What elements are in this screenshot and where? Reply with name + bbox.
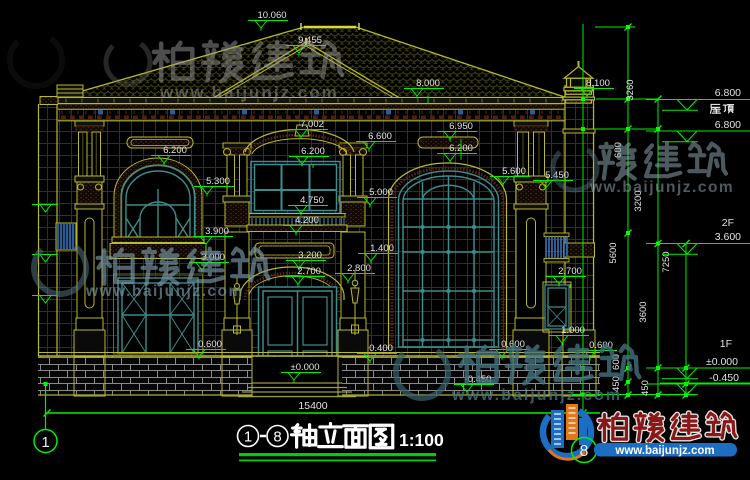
svg-text:10.060: 10.060 xyxy=(257,10,286,21)
svg-text:3.200: 3.200 xyxy=(298,250,322,261)
svg-text:2.800: 2.800 xyxy=(347,263,371,274)
svg-text:8.100: 8.100 xyxy=(586,78,610,89)
svg-text:5.300: 5.300 xyxy=(206,176,230,187)
svg-text:3600: 3600 xyxy=(638,301,649,322)
svg-text:ww.baijunjz.com: ww.baijunjz.com xyxy=(589,179,734,196)
svg-text:6.200: 6.200 xyxy=(163,145,187,156)
svg-text:1.400: 1.400 xyxy=(370,243,394,254)
svg-text:1F: 1F xyxy=(720,338,732,350)
svg-text:6.600: 6.600 xyxy=(368,131,392,142)
svg-text:7.002: 7.002 xyxy=(300,119,324,130)
svg-text:www.baijunjz.com: www.baijunjz.com xyxy=(614,445,714,457)
svg-text:5.600: 5.600 xyxy=(502,166,526,177)
svg-text:15400: 15400 xyxy=(298,400,327,412)
svg-text:www.baijunjz.com: www.baijunjz.com xyxy=(159,83,339,102)
svg-text:6.200: 6.200 xyxy=(301,146,325,157)
svg-text:www.baijunjz.com: www.baijunjz.com xyxy=(85,283,244,300)
svg-text:2F: 2F xyxy=(722,217,734,229)
svg-text:6.800: 6.800 xyxy=(715,119,741,131)
svg-text:3.900: 3.900 xyxy=(205,226,229,237)
svg-text:6.950: 6.950 xyxy=(449,121,473,132)
svg-text:2.700: 2.700 xyxy=(558,266,582,277)
svg-text:4.200: 4.200 xyxy=(295,215,319,226)
svg-text:3260: 3260 xyxy=(625,79,636,100)
svg-text:0.600: 0.600 xyxy=(198,339,222,350)
svg-text:www.baijunjz.com: www.baijunjz.com xyxy=(451,387,622,404)
svg-text:2.700: 2.700 xyxy=(297,266,321,277)
svg-text:1: 1 xyxy=(244,429,252,446)
svg-text:4.750: 4.750 xyxy=(300,195,324,206)
svg-text:3.600: 3.600 xyxy=(715,231,741,243)
svg-text:8: 8 xyxy=(580,443,589,460)
svg-text:-0.450: -0.450 xyxy=(709,372,739,384)
svg-text:±0.000: ±0.000 xyxy=(706,356,738,368)
svg-text:1: 1 xyxy=(41,434,49,451)
svg-text:8.000: 8.000 xyxy=(416,78,440,89)
svg-text:1.000: 1.000 xyxy=(561,325,585,336)
svg-text:6.800: 6.800 xyxy=(715,87,741,99)
svg-text:450: 450 xyxy=(640,380,651,396)
svg-text:8: 8 xyxy=(273,429,281,446)
svg-text:5.000: 5.000 xyxy=(369,187,393,198)
svg-text:1:100: 1:100 xyxy=(399,430,444,450)
svg-text:0.400: 0.400 xyxy=(369,343,393,354)
svg-text:5600: 5600 xyxy=(608,242,619,263)
svg-text:±0.000: ±0.000 xyxy=(291,362,320,373)
